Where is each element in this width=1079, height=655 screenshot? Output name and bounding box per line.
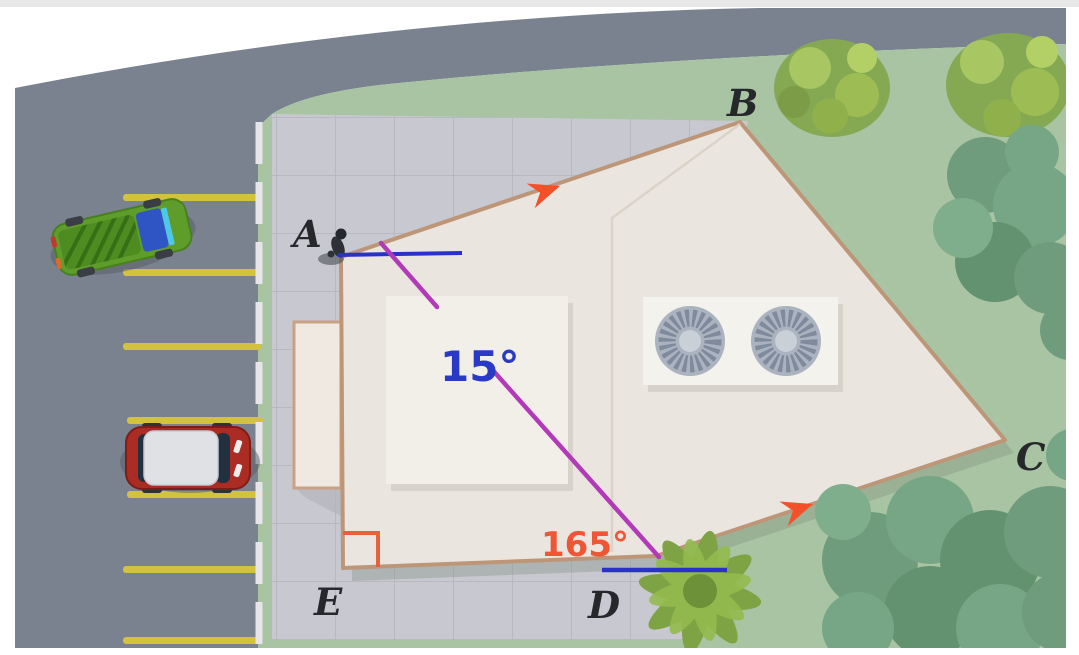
reference-line-at-a (338, 253, 462, 255)
tree-icon (774, 39, 890, 137)
vertex-label-c: C (1016, 435, 1046, 479)
left-margin (0, 0, 15, 655)
entrance-canopy (294, 322, 341, 516)
vertex-label-d: D (587, 583, 620, 627)
angle-label-at-d: 165° (541, 525, 629, 565)
bottom-margin (0, 648, 1079, 655)
vertex-label-b: B (726, 81, 758, 125)
tree-icon (946, 33, 1070, 137)
vertex-label-a: A (290, 212, 322, 256)
hvac-unit (643, 297, 843, 392)
red-car (120, 423, 260, 493)
diagram-canvas: 15° 165° A B C D E (0, 0, 1079, 655)
right-margin (1066, 0, 1079, 655)
top-edge-bar (0, 0, 1079, 7)
geometry-diagram-figure: 15° 165° A B C D E (0, 0, 1079, 655)
vertex-label-e: E (313, 580, 343, 624)
bush-icon (815, 476, 1079, 655)
angle-label-at-a: 15° (440, 342, 519, 391)
hvac-fan-icon (751, 306, 821, 376)
hvac-fan-icon (655, 306, 725, 376)
roof-skylight (386, 296, 573, 491)
